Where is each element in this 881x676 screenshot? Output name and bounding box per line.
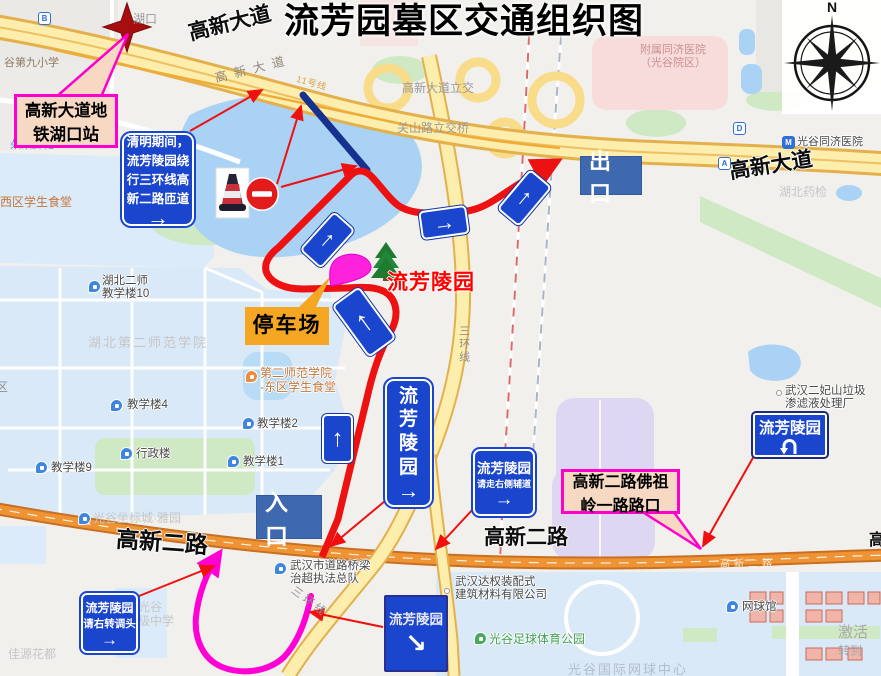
- sign-line: 流: [399, 385, 418, 409]
- callout-line: 高新大道地: [25, 97, 108, 121]
- up-arrow-icon: ↑: [348, 304, 380, 340]
- poi-marker-bldg1-icon: [227, 455, 240, 468]
- poi-west-canteen: 西区学生食堂: [0, 196, 72, 210]
- poi-east-canteen: 第二师范学院 -东区学生食堂: [260, 367, 336, 395]
- watermark-activate: 激活 转到: [838, 624, 868, 661]
- poi-marker-daquan-icon: [444, 588, 450, 594]
- marker-letter: B: [42, 14, 48, 23]
- u-turn-arrow-icon: [779, 438, 801, 455]
- page-title: 流芳园墓区交通组织图: [284, 2, 644, 42]
- poi-hb2-university: 湖北第二师范学院: [88, 336, 208, 351]
- poi-marker-bldg4-icon: [110, 399, 123, 412]
- right-arrow-icon: →: [147, 207, 169, 229]
- poi-line: 教学楼10: [102, 288, 149, 300]
- poi-marker-bridge-team-icon: [274, 562, 287, 575]
- sign-line: 芳: [399, 408, 418, 432]
- watermark-line: 转到: [838, 644, 862, 658]
- poi-marker-admin-icon: [120, 447, 133, 460]
- poi-tongji-metro: 光谷同济医院: [797, 136, 863, 149]
- down-right-arrow-icon: ↘: [405, 628, 427, 659]
- sign-line: 清明期间，: [127, 131, 190, 150]
- poi-tennis-center: 光谷国际网球中心: [568, 663, 688, 676]
- label-text: 入口: [265, 483, 321, 551]
- right-arrow-icon: →: [398, 480, 420, 502]
- poi-hukou: 湖口: [133, 13, 157, 27]
- poi-line: -东区学生食堂: [260, 380, 336, 394]
- poi-line: 治超执法总队: [290, 573, 359, 585]
- poi-line: 级中学: [138, 614, 174, 628]
- poi-line: （光谷院区）: [640, 57, 706, 69]
- poi-line: 渗滤液处理厂: [785, 398, 854, 410]
- right-arrow-icon: →: [495, 490, 514, 509]
- sign-line: 新二路匝道: [127, 188, 190, 207]
- poi-marker-landfill-icon: [776, 390, 782, 396]
- road-label-gaoxin2-mid: 高新二路: [484, 526, 568, 550]
- poi-marker-canteen-icon: [245, 370, 258, 383]
- right-arrow-icon: →: [101, 631, 118, 648]
- up-arrow-icon: ↑: [314, 226, 342, 255]
- poi-hb2-bldg10: 湖北二师 教学楼10: [102, 275, 149, 301]
- road-label-gaoxin2-onroad: 高新二路: [720, 559, 776, 571]
- poi-line: 建筑材料有限公司: [455, 589, 547, 601]
- poi-school9: 谷第九小学: [4, 57, 59, 70]
- entrance-label: 入口: [256, 495, 322, 539]
- poi-admin: 行政楼: [136, 448, 171, 461]
- callout-line: 高新二路佛祖: [572, 468, 668, 492]
- sign-line: 流芳陵园: [389, 608, 443, 628]
- poi-marker-zuobiao-icon: [78, 512, 91, 525]
- callout-line: 岭一路路口: [580, 492, 660, 516]
- watermark-line: 激活: [838, 624, 868, 641]
- poi-marker-tennis-hall-icon: [726, 600, 739, 613]
- poi-marker-bldg9-icon: [35, 461, 48, 474]
- poi-jiayuan: 佳源花都: [8, 648, 56, 662]
- poi-zuobiao: 光谷坐标城·雅园: [93, 512, 181, 526]
- traffic-map: N 流芳园墓区交通组织图 高新大道 高新大道 高新大道 高新大道立交 关山路立交…: [0, 0, 881, 676]
- poi-bldg2: 教学楼2: [257, 418, 298, 431]
- sign-line: 请走右侧辅道: [477, 477, 531, 490]
- poi-line: 武汉市道路桥梁: [290, 560, 371, 572]
- poi-line: 光谷: [138, 600, 162, 614]
- poi-landfill: 武汉二妃山垃圾 渗滤液处理厂: [785, 385, 866, 411]
- metro-exit-d-marker: D: [733, 122, 746, 135]
- poi-bldg4: 教学楼4: [127, 399, 168, 412]
- road-label-gaoxin-interchange: 高新大道立交: [402, 82, 474, 96]
- right-arrow-icon: →: [431, 208, 456, 237]
- poi-daquan: 武汉达权装配式 建筑材料有限公司: [455, 576, 547, 602]
- right-turn-uturn-sign: 流芳陵园 请右转调头 →: [81, 593, 138, 653]
- poi-marker-bldg2-icon: [242, 417, 255, 430]
- marker-letter: M: [785, 138, 792, 147]
- sign-line: 请右转调头: [83, 616, 136, 631]
- sign-line: 流芳陵园: [477, 457, 531, 477]
- diagonal-cemetery-sign: 流芳陵园 ↘: [384, 595, 448, 672]
- u-turn-sign: 流芳陵园: [753, 413, 827, 457]
- sign-line: 流芳陵园: [759, 416, 821, 438]
- metro-m-logo: M: [782, 136, 795, 149]
- poi-tennis-hall: 网球馆: [742, 601, 777, 614]
- qingming-detour-sign: 清明期间， 流芳陵园绕 行三环线高 新二路匝道 →: [122, 133, 194, 226]
- compass-rose: N: [782, 0, 881, 114]
- metro-exit-a-marker: A: [718, 157, 731, 170]
- traffic-cone-icon: [216, 168, 249, 218]
- up-arrow-icon: ↑: [511, 183, 538, 212]
- poi-bridge-team: 武汉市道路桥梁 治超执法总队: [290, 560, 371, 586]
- poi-line: 第二师范学院: [260, 366, 332, 380]
- poi-line: 附属同济医院: [640, 44, 706, 56]
- sign-line: 陵: [399, 432, 418, 456]
- no-entry-icon: [245, 177, 279, 211]
- road-label-guanshan-interchange: 关山路立交桥: [397, 122, 469, 136]
- callout-line: 铁湖口站: [33, 121, 99, 145]
- poi-football-park: 光谷足球体育公园: [489, 633, 585, 647]
- up-arrow-icon: ↑: [332, 425, 344, 453]
- poi-bldg9: 教学楼9: [51, 462, 92, 475]
- poi-tongji-hospital: 附属同济医院 （光谷院区）: [640, 44, 706, 69]
- marker-letter: D: [737, 124, 743, 133]
- cemetery-name-label: 流芳陵园: [387, 271, 475, 295]
- exit-label: 出口: [580, 156, 642, 195]
- road-label-gaoxin2-partial: 高: [869, 532, 881, 550]
- compass-north-label: N: [827, 0, 837, 15]
- poi-qu-fragment: 区: [0, 381, 8, 395]
- marker-letter: A: [722, 159, 728, 168]
- parking-label: 停车场: [245, 307, 329, 345]
- sign-line: 流芳陵园: [85, 599, 133, 616]
- metro-exit-b-marker: B: [38, 12, 51, 25]
- metro-station-callout: 高新大道地 铁湖口站: [14, 94, 118, 148]
- sign-line: 行三环线高: [127, 169, 190, 188]
- poi-line: 武汉达权装配式: [455, 576, 536, 588]
- route-arrow-sign-5: ↑: [322, 414, 353, 463]
- poi-marker-football-icon: [474, 632, 487, 645]
- poi-line: 湖北二师: [102, 275, 148, 287]
- fozuling-intersection-callout: 高新二路佛祖 岭一路路口: [561, 469, 680, 514]
- poi-yaojian: 湖北药检: [779, 186, 827, 200]
- sign-line: 流芳陵园绕: [127, 150, 190, 169]
- sign-line: 园: [399, 456, 418, 480]
- poi-marker-bldg10-icon: [88, 280, 101, 293]
- cemetery-vertical-sign: 流 芳 陵 园 →: [385, 379, 432, 507]
- side-road-sign: 流芳陵园 请走右侧辅道 →: [473, 449, 535, 516]
- label-text: 出口: [589, 144, 641, 208]
- poi-middle-school: 光谷 级中学: [138, 601, 174, 629]
- poi-bldg1: 教学楼1: [243, 456, 284, 469]
- road-label-third-ring-vertical: 三环线: [457, 325, 470, 364]
- poi-line: 武汉二妃山垃圾: [785, 385, 866, 397]
